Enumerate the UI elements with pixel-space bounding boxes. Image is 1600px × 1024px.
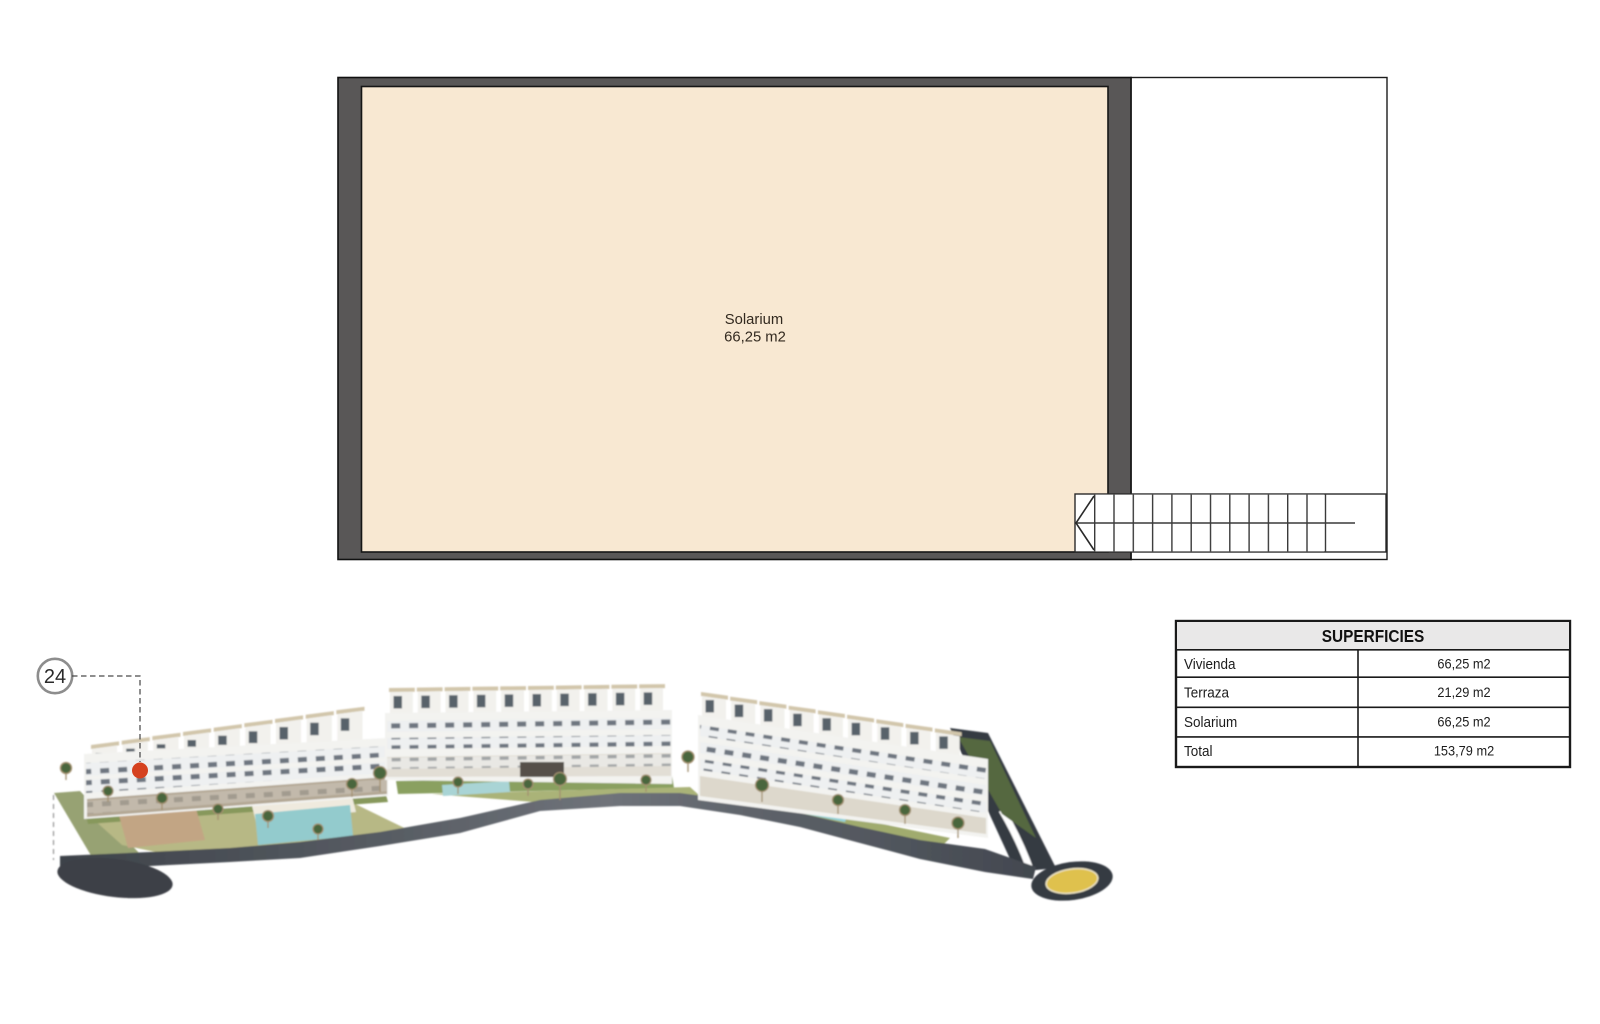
svg-text:66,25 m2: 66,25 m2 [1437, 656, 1490, 672]
svg-text:SUPERFICIES: SUPERFICIES [1322, 627, 1425, 646]
svg-text:24: 24 [44, 666, 66, 688]
svg-text:Total: Total [1184, 743, 1212, 760]
svg-text:Terraza: Terraza [1184, 685, 1229, 702]
svg-text:66,25 m2: 66,25 m2 [724, 330, 786, 346]
svg-text:21,29 m2: 21,29 m2 [1437, 684, 1490, 700]
svg-text:Solarium: Solarium [1184, 714, 1237, 731]
svg-text:66,25 m2: 66,25 m2 [1437, 714, 1490, 730]
svg-text:Vivienda: Vivienda [1184, 656, 1236, 673]
svg-text:Solarium: Solarium [725, 312, 783, 328]
svg-text:153,79 m2: 153,79 m2 [1434, 743, 1494, 759]
